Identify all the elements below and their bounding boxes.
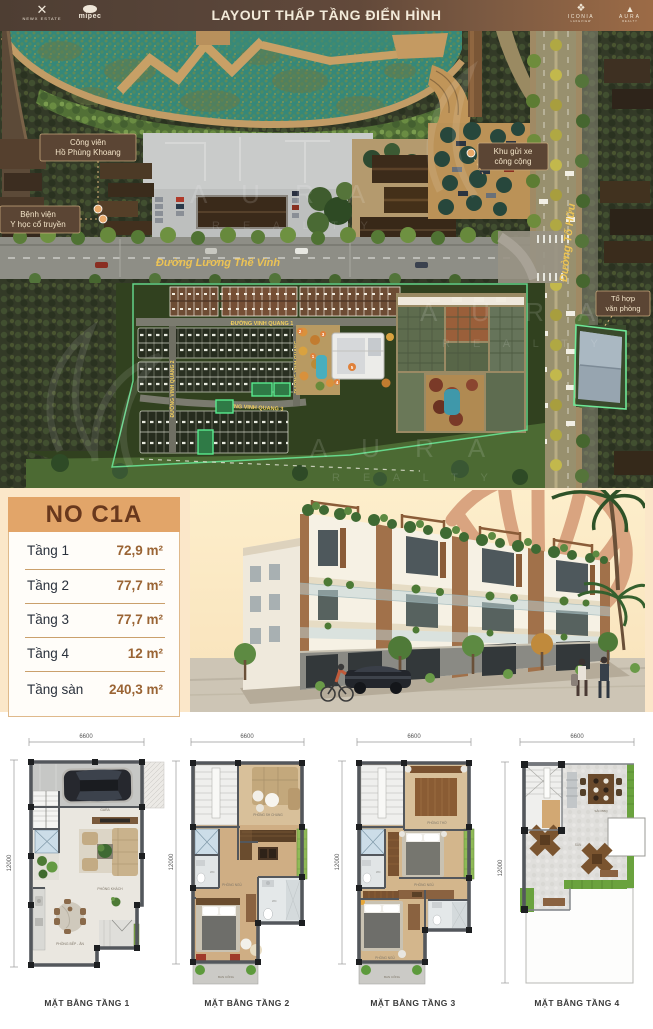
svg-text:PHÒNG NGỦ: PHÒNG NGỦ: [375, 955, 395, 960]
svg-text:Đường Lương Thế Vinh: Đường Lương Thế Vinh: [156, 257, 280, 269]
svg-text:Hồ Phùng Khoang: Hồ Phùng Khoang: [55, 148, 120, 157]
svg-text:BAN CÔNG: BAN CÔNG: [384, 974, 401, 979]
svg-text:PHÒNG NGỦ: PHÒNG NGỦ: [414, 882, 434, 887]
svg-text:6600: 6600: [407, 734, 421, 740]
svg-text:GARA: GARA: [100, 808, 110, 812]
svg-text:PHÒNG BẾP - ĂN: PHÒNG BẾP - ĂN: [56, 941, 84, 946]
svg-text:WC: WC: [210, 870, 215, 874]
svg-text:PHÒNG SH CHUNG: PHÒNG SH CHUNG: [253, 812, 283, 817]
svg-text:MẶT BẰNG TẦNG 2: MẶT BẰNG TẦNG 2: [204, 998, 289, 1008]
svg-text:R E A L T Y: R E A L T Y: [442, 338, 608, 350]
svg-text:6600: 6600: [240, 734, 254, 740]
svg-text:PHÒNG NGỦ: PHÒNG NGỦ: [222, 882, 242, 887]
svg-text:R E A L T Y: R E A L T Y: [332, 472, 498, 484]
svg-text:MẶT BẰNG TẦNG 4: MẶT BẰNG TẦNG 4: [534, 998, 619, 1008]
svg-text:công cộng: công cộng: [495, 157, 532, 166]
svg-text:12000: 12000: [7, 854, 13, 871]
svg-text:R E A L T Y: R E A L T Y: [212, 220, 378, 232]
svg-text:Tổ hợp: Tổ hợp: [611, 294, 635, 303]
svg-text:BAN CÔNG: BAN CÔNG: [218, 974, 235, 979]
svg-text:Công viên: Công viên: [70, 138, 106, 147]
svg-text:12000: 12000: [169, 853, 175, 870]
svg-text:ĐƯỜNG VINH QUANG 1: ĐƯỜNG VINH QUANG 1: [231, 319, 294, 327]
svg-text:PHÒNG KHÁCH: PHÒNG KHÁCH: [97, 886, 123, 891]
svg-text:SÂN BBQ: SÂN BBQ: [594, 808, 608, 813]
svg-text:12000: 12000: [335, 853, 341, 870]
svg-text:A U R A: A U R A: [190, 179, 379, 209]
svg-text:Khu gửi xe: Khu gửi xe: [494, 147, 533, 156]
svg-text:WC: WC: [272, 899, 277, 903]
svg-text:A U R A: A U R A: [310, 433, 499, 463]
svg-text:WC: WC: [376, 870, 381, 874]
svg-text:ĐƯỜNG VINH QUANG 2: ĐƯỜNG VINH QUANG 2: [168, 360, 176, 417]
svg-text:Y học cổ truyền: Y học cổ truyền: [10, 220, 65, 229]
svg-text:12000: 12000: [498, 859, 504, 876]
svg-text:6600: 6600: [79, 734, 93, 740]
svg-text:MẶT BẰNG TẦNG 3: MẶT BẰNG TẦNG 3: [370, 998, 455, 1008]
svg-text:6600: 6600: [570, 734, 584, 740]
svg-text:PHÒNG THỜ: PHÒNG THỜ: [427, 820, 447, 825]
svg-text:văn phòng: văn phòng: [605, 304, 640, 313]
svg-text:Bệnh viện: Bệnh viện: [20, 210, 56, 219]
svg-text:SÂN: SÂN: [575, 843, 582, 847]
svg-text:MẶT BẰNG TẦNG 1: MẶT BẰNG TẦNG 1: [44, 998, 129, 1008]
svg-text:A U R A: A U R A: [420, 297, 609, 327]
